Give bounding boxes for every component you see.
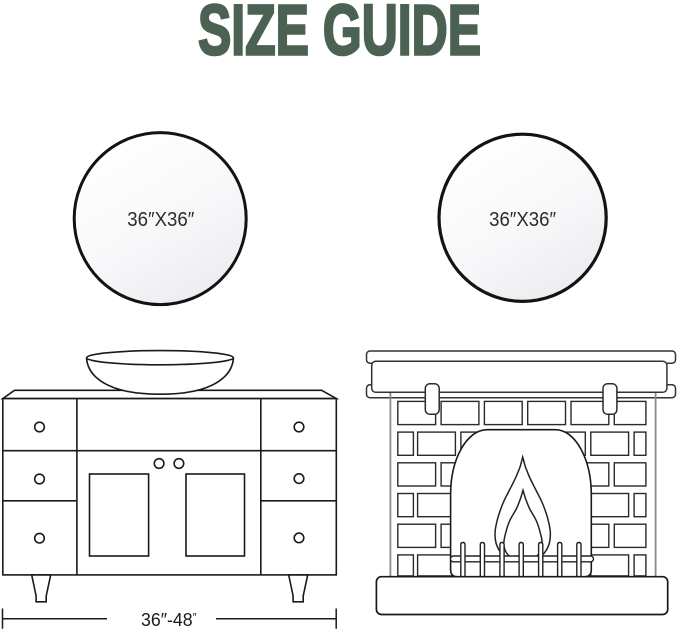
svg-text:36″X36″: 36″X36″ [127, 208, 194, 231]
svg-text:SIZE GUIDE: SIZE GUIDE [198, 0, 481, 70]
svg-text:36″-48″: 36″-48″ [141, 609, 197, 629]
svg-text:36″X36″: 36″X36″ [489, 208, 556, 231]
